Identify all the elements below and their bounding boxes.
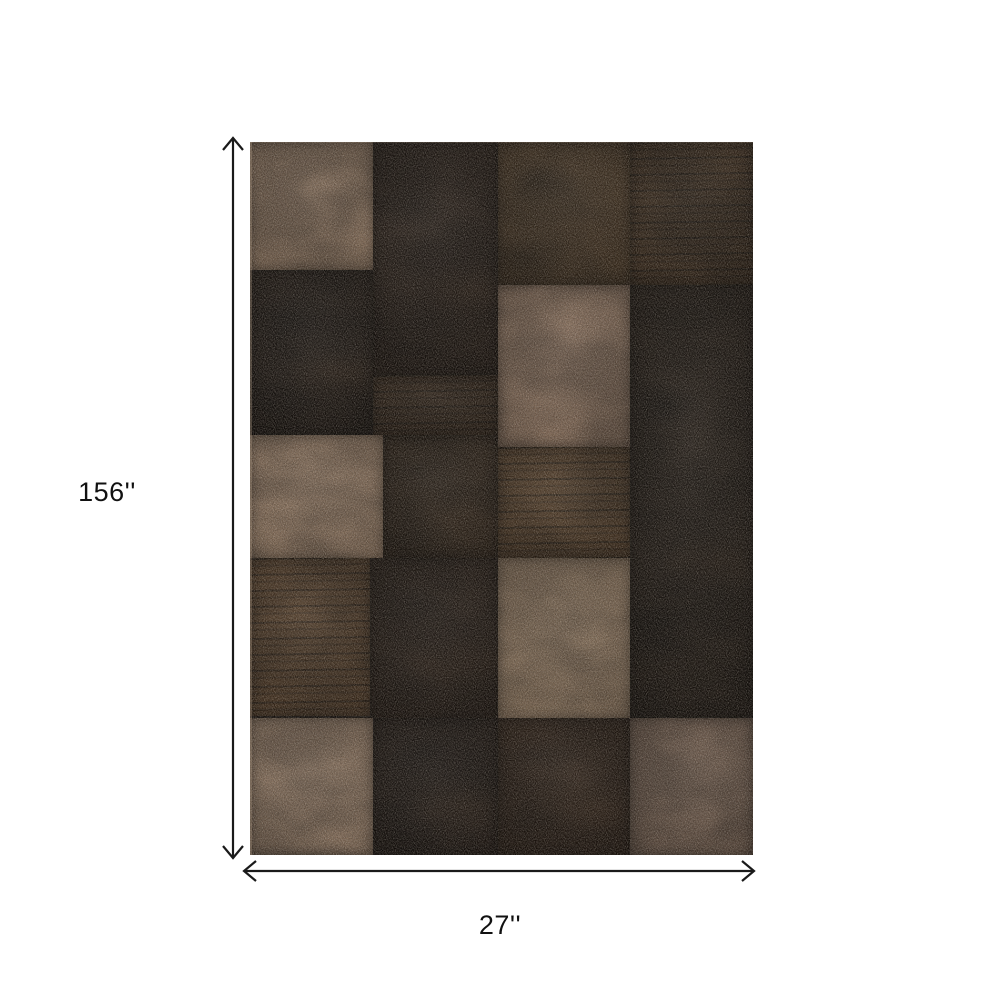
rug-tile-f-dark-column: [630, 285, 753, 718]
rug-tile-b2-striated: [373, 375, 498, 437]
rug-tile-q-taupe: [630, 718, 753, 855]
rug-tile-g-tan: [250, 435, 383, 558]
width-dimension-arrow: [240, 856, 760, 886]
rug-tile-i-medium-brown: [498, 447, 630, 558]
rug-tile-h-dark: [383, 435, 498, 560]
rug-tile-c1-brown: [498, 142, 630, 285]
rug-image: [250, 142, 753, 855]
rug-tile-j-striated-brown: [250, 558, 370, 716]
rug-tile-a-tan: [250, 142, 373, 270]
product-dimension-image: 156'' 27'': [0, 0, 1000, 1000]
height-dimension-label: 156'': [52, 477, 162, 508]
rug-tile-n-tan: [250, 718, 373, 855]
height-dimension-arrow: [218, 128, 248, 868]
width-dimension-label: 27'': [450, 910, 550, 941]
rug-tile-e-tan: [498, 285, 630, 447]
rug-tile-c2-brown-dark: [630, 142, 753, 285]
rug-tile-p-dark-brown: [498, 718, 630, 855]
rug-tile-l-tan: [498, 558, 630, 720]
rug-tile-k-dark: [370, 558, 498, 720]
rug-tile-o-dark: [373, 718, 498, 855]
rug-tile-b-dark: [373, 142, 498, 375]
rug-tile-d-black: [250, 270, 373, 435]
